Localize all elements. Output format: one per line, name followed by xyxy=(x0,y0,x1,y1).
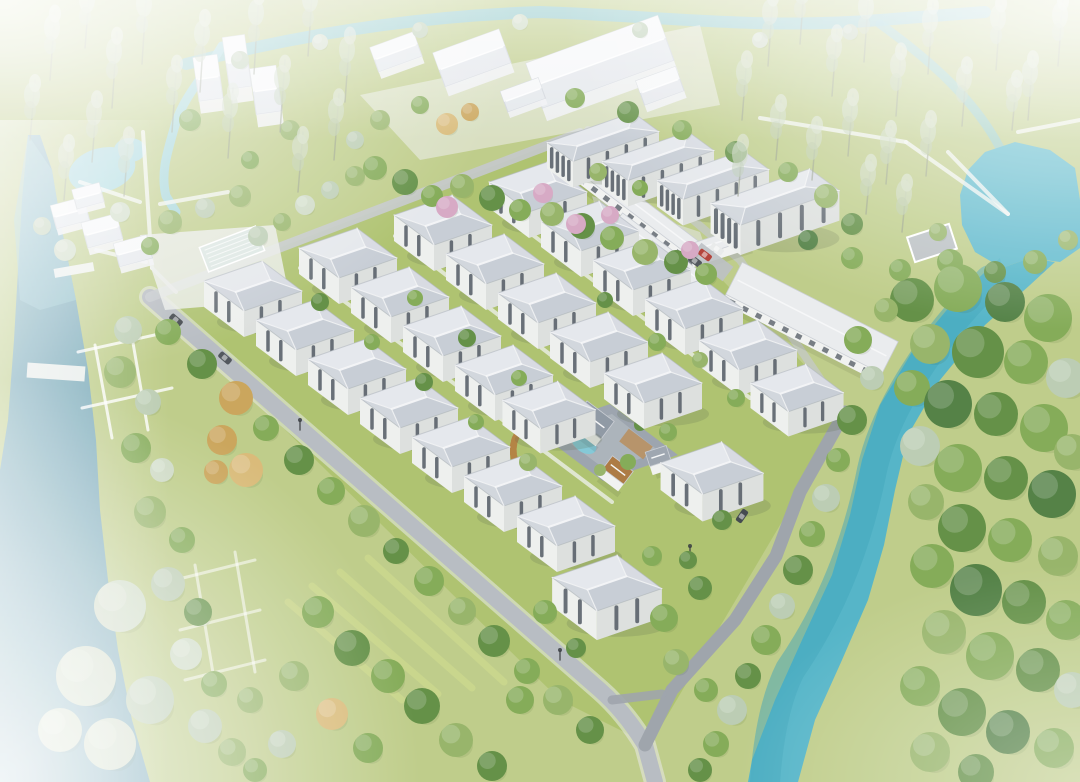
scene-svg xyxy=(0,0,1080,782)
haze-overlay xyxy=(0,0,1080,782)
haze-veil xyxy=(0,0,1080,782)
aerial-render-image xyxy=(0,0,1080,782)
